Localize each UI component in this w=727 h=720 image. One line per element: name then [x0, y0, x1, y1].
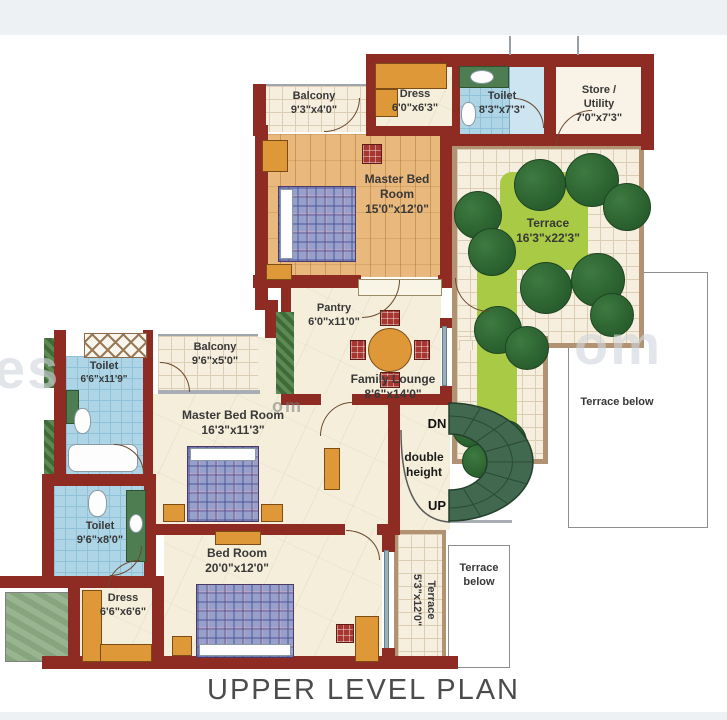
dining-chair: [414, 340, 430, 360]
nightstand: [172, 636, 192, 656]
railing-hatch: [84, 333, 147, 358]
room-label-family-lounge: Family Lounge8'6"x14'0": [330, 372, 456, 402]
spiral-staircase: [448, 400, 536, 524]
wall: [382, 648, 395, 666]
wall: [42, 474, 156, 486]
bed-pillows: [190, 448, 256, 461]
wall: [382, 528, 395, 552]
stair-down-label: DN: [420, 416, 454, 432]
room-label-toilet-mid: Toilet6'6"x11'9": [64, 360, 144, 386]
stool: [336, 624, 354, 643]
top-strip: [0, 0, 727, 35]
room-label-terrace-below-bottom: Terrace below: [450, 562, 508, 590]
room-label-dress-lower: Dress6'6"x6'6": [76, 592, 170, 620]
garden-square: [5, 592, 73, 662]
room-label-balcony-mid: Balcony9'6"x5'0": [160, 341, 270, 369]
desk: [355, 616, 379, 662]
room-label-bedroom: Bed Room20'0"x12'0": [184, 546, 290, 576]
room-label-store: Store / Utility7'0"x7'3": [570, 84, 628, 125]
wall: [366, 126, 458, 136]
dimension-tick: [509, 36, 511, 55]
room-label-toilet-top: Toilet8'3"x7'3": [460, 90, 544, 118]
room-label-terrace-strip: Terrace5'3"x12'0": [403, 535, 437, 665]
wall: [544, 56, 556, 144]
dining-chair: [350, 340, 366, 360]
room-label-balcony-top: Balcony9'3"x4'0": [260, 90, 368, 118]
wardrobe: [375, 63, 447, 89]
bed-pillows: [280, 189, 293, 259]
sliding-door: [384, 550, 389, 650]
watermark-fragment: om: [272, 396, 303, 417]
wc: [88, 490, 107, 517]
wall: [152, 576, 164, 664]
room-label-master-top: Master Bed Room 15'0"x12'0": [342, 172, 452, 217]
wc: [74, 408, 91, 434]
bed-pillows: [199, 644, 291, 656]
wall: [452, 134, 652, 146]
wardrobe: [100, 644, 152, 662]
room-label-dress-top: Dress6'0"x6'3": [374, 88, 456, 116]
watermark-fragment: es: [0, 336, 60, 401]
floor-plan: Balcony9'3"x4'0" Dress6'0"x6'3" Toilet8'…: [0, 0, 727, 720]
nightstand: [261, 504, 283, 522]
bed-bench: [266, 264, 292, 280]
plan-title: UPPER LEVEL PLAN: [0, 674, 727, 707]
tree-icon: [514, 159, 566, 211]
nightstand: [163, 504, 185, 522]
watermark-fragment: om: [574, 312, 662, 377]
tree-icon: [603, 183, 651, 231]
dining-chair: [380, 310, 400, 326]
stool: [362, 144, 382, 164]
tree-icon: [520, 262, 572, 314]
room-label-terrace-main: Terrace16'3"x22'3": [494, 216, 602, 246]
dressing-table: [262, 140, 288, 172]
cabinet: [324, 448, 340, 490]
tree-icon: [505, 326, 549, 370]
stair-up-label: UP: [420, 498, 454, 514]
dining-table: [368, 328, 412, 372]
double-height-label: double height: [394, 450, 454, 480]
room-label-terrace-below-right: Terrace below: [570, 396, 664, 410]
plant-strip: [44, 420, 54, 474]
room-label-pantry: Pantry6'0"x11'0": [288, 302, 380, 330]
room-label-toilet-lower: Toilet9'6"x8'0": [52, 520, 148, 548]
wash-basin: [470, 70, 494, 84]
dresser: [215, 531, 261, 545]
dimension-tick: [577, 36, 579, 55]
bottom-strip: [0, 712, 727, 720]
